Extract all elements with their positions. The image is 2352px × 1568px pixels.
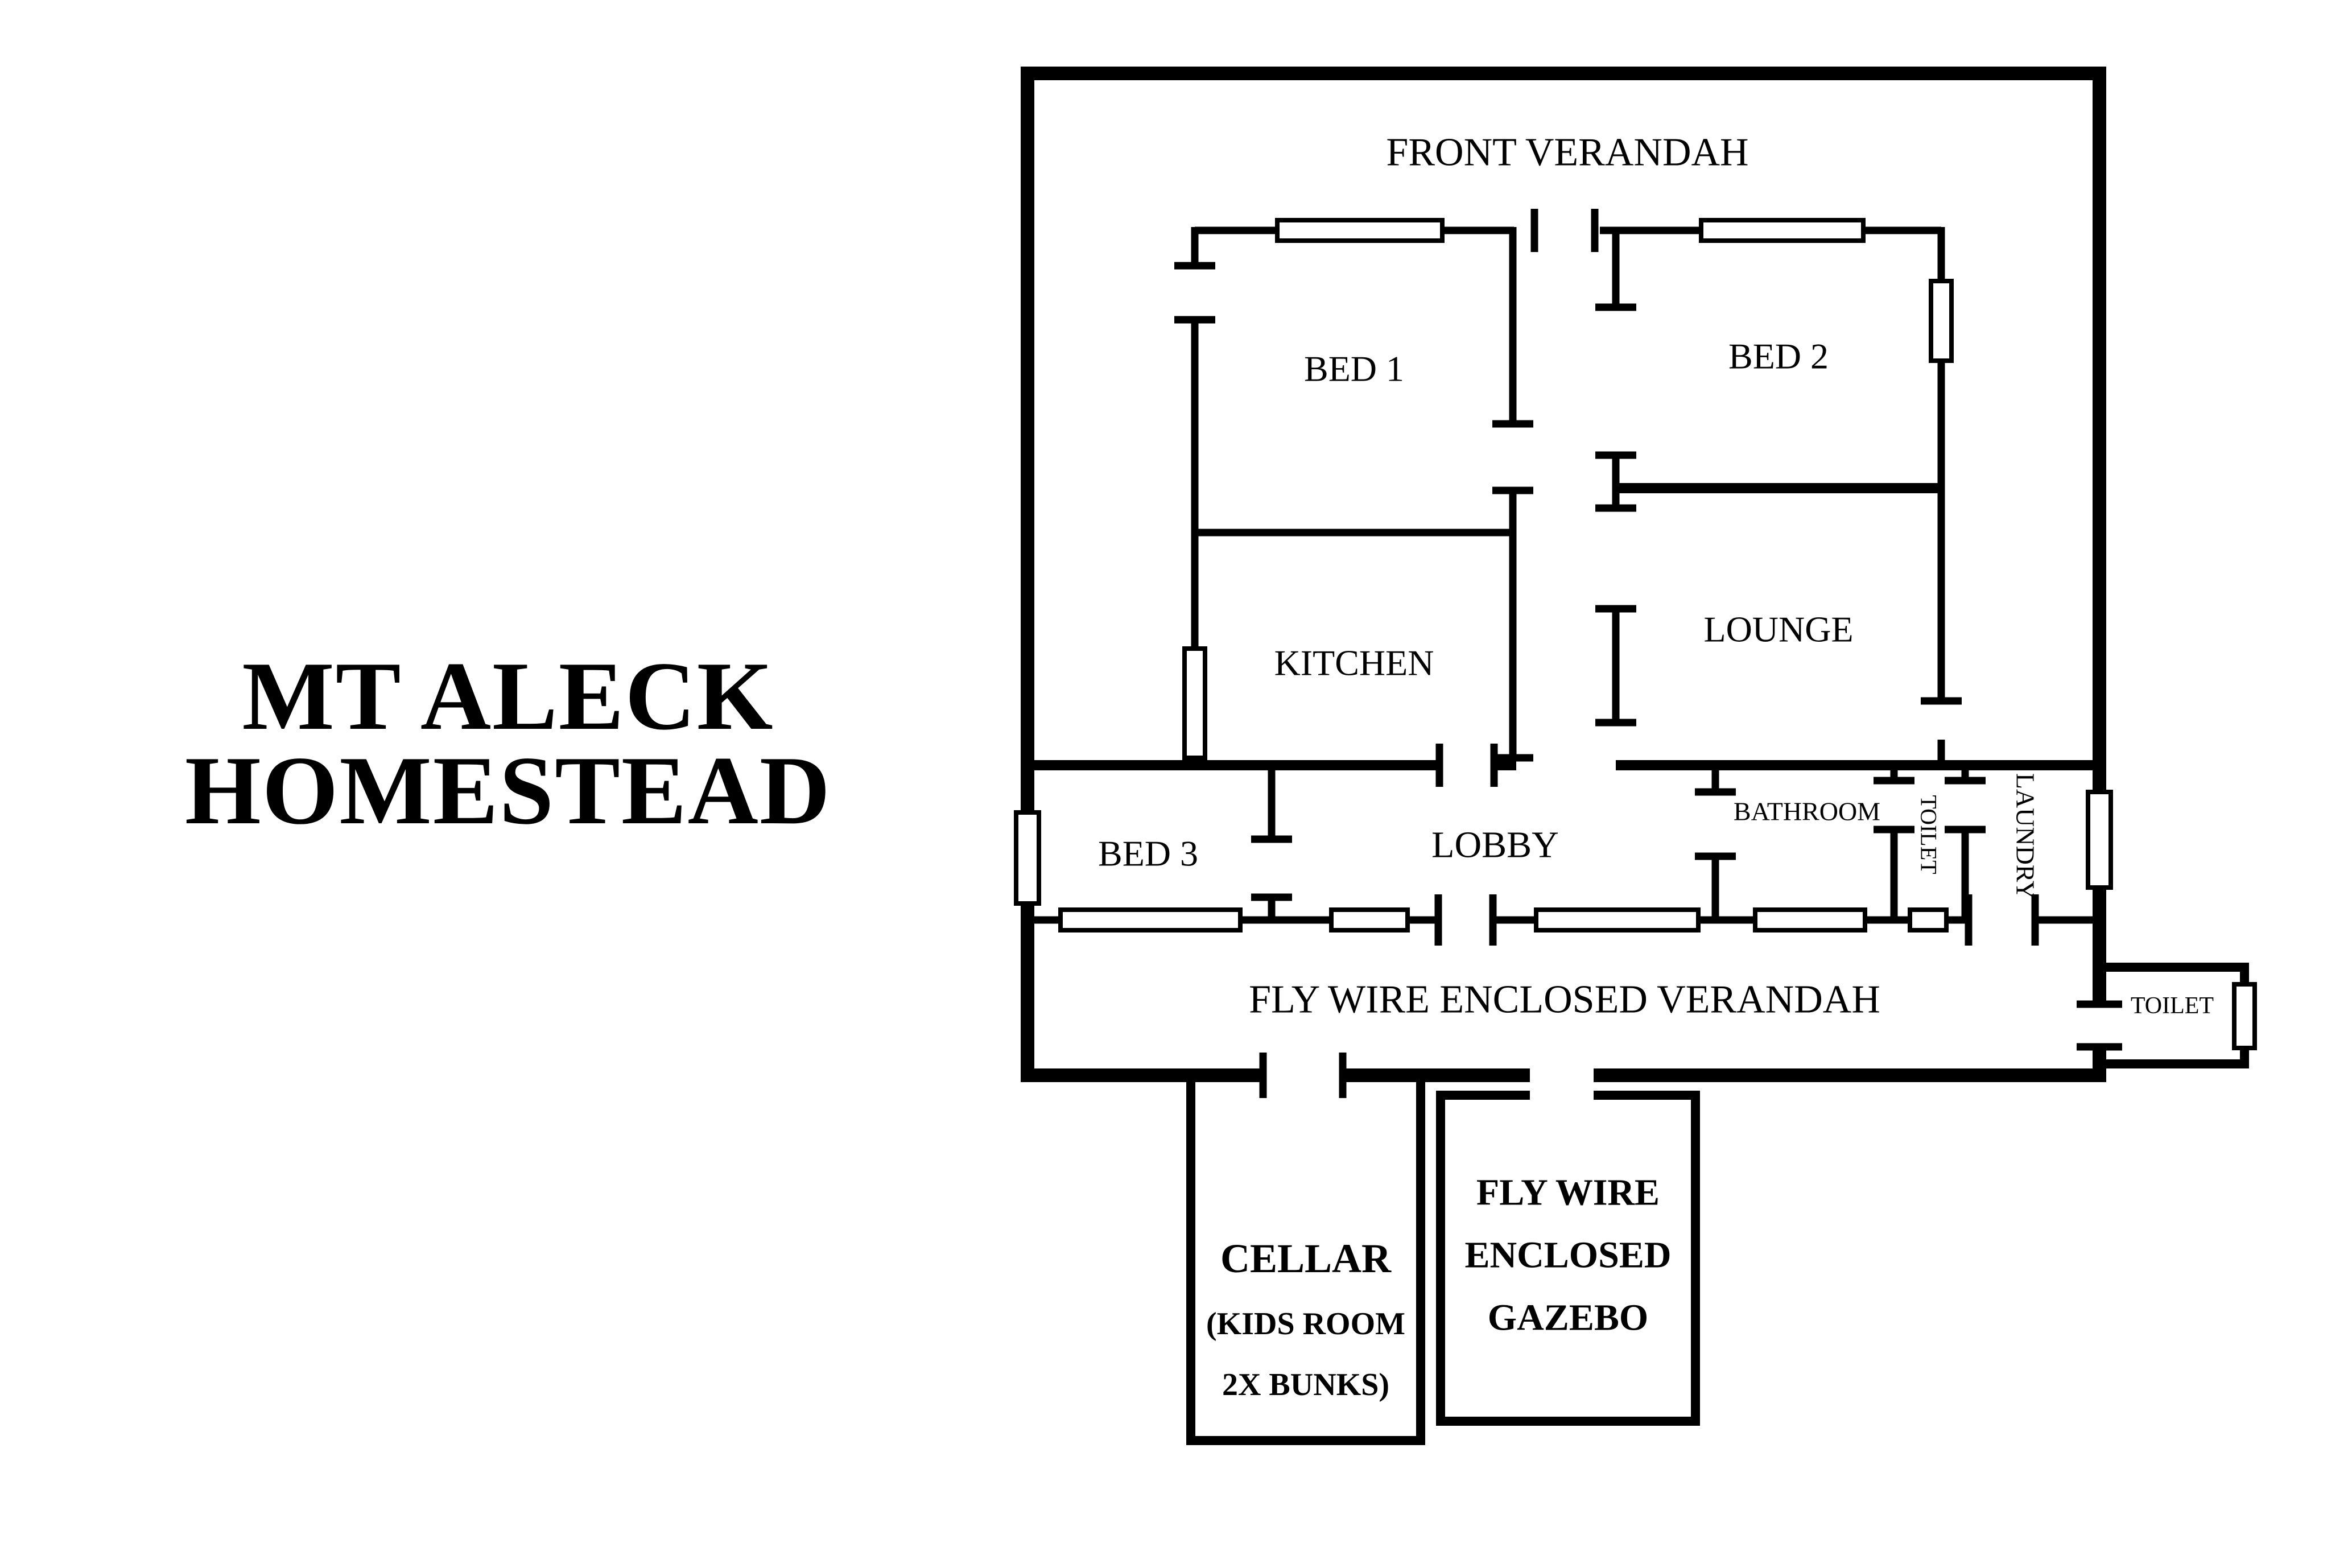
bed2-label: BED 2 — [1728, 336, 1829, 377]
outer-wall-right-lower — [1594, 1047, 2099, 1075]
windows — [1016, 220, 2255, 1048]
lobby-label: LOBBY — [1431, 824, 1559, 866]
middle-row-walls — [1251, 762, 1986, 923]
cellar-label-line2: (KIDS ROOM — [1206, 1306, 1405, 1342]
bed3-label: BED 3 — [1098, 833, 1198, 874]
gazebo-label-line1: FLY WIRE — [1476, 1172, 1660, 1214]
laundry-east-window — [2088, 792, 2111, 888]
bathroom-label: BATHROOM — [1734, 797, 1880, 826]
fly-wire-verandah-label: FLY WIRE ENCLOSED VERANDAH — [1249, 978, 1880, 1022]
inner-walls-front-block — [1174, 209, 1962, 769]
lobby-south-window-east — [1536, 910, 1698, 930]
kitchen-label: KITCHEN — [1274, 643, 1434, 683]
outside-toilet-east-window — [2234, 984, 2255, 1048]
bed2-north-window — [1701, 220, 1863, 241]
bed1-north-window — [1277, 220, 1442, 241]
floor-plan-drawing: MT ALECK HOMESTEAD FRONT VERANDAH BED 1 … — [0, 0, 2352, 1568]
kitchen-west-window — [1185, 649, 1205, 758]
bed1-label: BED 1 — [1304, 349, 1404, 389]
cellar-label-line1: CELLAR — [1220, 1236, 1392, 1281]
lobby-south-window-west — [1331, 910, 1408, 930]
front-verandah-label: FRONT VERANDAH — [1386, 131, 1748, 175]
gazebo-label-line2: ENCLOSED — [1464, 1235, 1671, 1276]
bed2-east-window — [1931, 281, 1951, 361]
bed3-west-window — [1016, 812, 1039, 903]
cellar-label-line3: 2X BUNKS) — [1222, 1367, 1389, 1402]
gazebo-label-line3: GAZEBO — [1488, 1297, 1648, 1339]
lounge-label: LOUNGE — [1703, 609, 1853, 650]
bed3-south-window — [1061, 910, 1240, 930]
toilet-south-window — [1910, 910, 1946, 930]
floor-plan-page: MT ALECK HOMESTEAD FRONT VERANDAH BED 1 … — [0, 0, 2352, 1568]
laundry-label: LAUNDRY — [2011, 773, 2040, 899]
toilet-label: TOILET — [1916, 795, 1942, 874]
plan-title-line2: HOMESTEAD — [185, 737, 831, 845]
bathroom-south-window — [1755, 910, 1865, 930]
plan-title-line1: MT ALECK — [242, 642, 774, 750]
outside-toilet-label: TOILET — [2131, 993, 2214, 1019]
